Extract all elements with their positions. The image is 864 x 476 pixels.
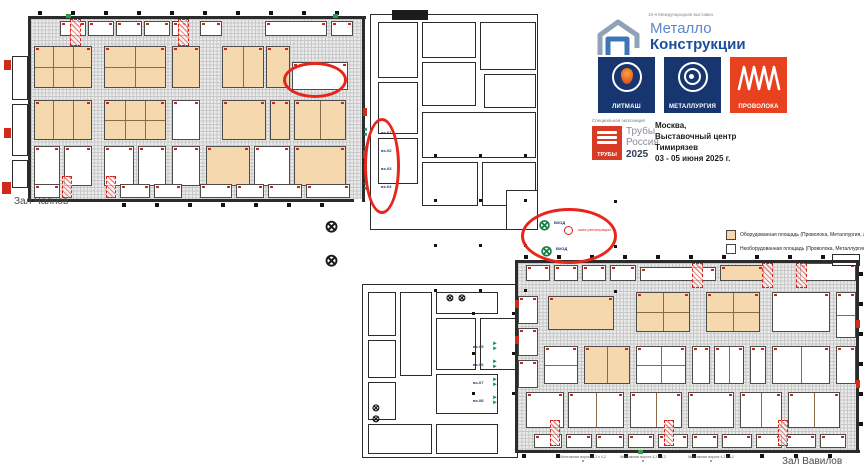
booth — [268, 184, 302, 198]
column-dot — [524, 154, 527, 157]
booth — [820, 434, 846, 448]
booth — [306, 184, 350, 198]
entrance-label: вх-07 — [473, 380, 489, 386]
booth — [836, 346, 856, 384]
booth — [688, 392, 734, 428]
floor-plan-page: ⊗⊗⊗⊗⊗⊗⊗⊗◄◄вх-01◄◄вх-02◄◄вх-03◄◄вх-04►►вх… — [0, 0, 864, 476]
booth — [518, 360, 538, 388]
booth-divider — [105, 120, 165, 121]
booth — [720, 265, 764, 281]
booth — [596, 434, 624, 448]
booth-divider — [243, 47, 244, 87]
booth — [518, 296, 538, 324]
tile-label: ПРОВОЛОКА — [730, 104, 787, 110]
gate-note: Монтажные ворота 4,2 х 4,2 м — [688, 455, 734, 469]
booth — [772, 292, 830, 332]
fire-lane-strip — [692, 263, 703, 288]
booth-divider — [656, 393, 657, 427]
entrance-arrow-icon: ►► — [492, 342, 504, 352]
booth-divider — [596, 393, 597, 427]
booth — [722, 434, 752, 448]
booth — [566, 434, 592, 448]
entrance-label: вх-05 — [473, 344, 489, 350]
service-room — [422, 112, 536, 158]
column-dot — [689, 255, 693, 259]
entrance-arrow-icon: ►► — [492, 360, 504, 370]
tile-label: МЕТАЛЛУРГИЯ — [664, 104, 721, 110]
column-dot — [614, 200, 617, 203]
booth — [750, 346, 766, 384]
column-dot — [859, 332, 863, 336]
turnstile-icon: ⊗ — [444, 294, 456, 306]
column-dot — [269, 11, 273, 15]
column-dot — [122, 203, 126, 207]
brand-word-2: Конструкции — [650, 36, 746, 53]
column-dot — [859, 392, 863, 396]
service-room — [400, 292, 432, 376]
column-dot — [512, 392, 515, 395]
booth — [144, 21, 170, 36]
column-dot — [859, 302, 863, 306]
venue-line: 03 - 05 июня 2025 г. — [655, 153, 736, 164]
legend: Оборудованная площадь (Проволока, Металл… — [726, 230, 864, 258]
fire-lane-strip — [70, 19, 81, 46]
booth — [518, 328, 538, 356]
truby-line2: Россия — [626, 137, 659, 148]
booth-divider — [607, 347, 608, 383]
booth — [34, 100, 92, 140]
legend-label: Оборудованная площадь (Проволока, Металл… — [740, 232, 864, 238]
booth — [526, 265, 550, 281]
booth — [582, 265, 606, 281]
brand-tile-проволока: ПРОВОЛОКА — [730, 57, 787, 113]
booth-divider — [801, 347, 802, 383]
booth-divider — [320, 101, 321, 139]
entrance-arrow-icon: ►► — [492, 378, 504, 388]
highlight-ellipse — [283, 62, 347, 98]
column-dot — [479, 154, 482, 157]
hall1-label: Зал Чаянов — [14, 196, 94, 210]
venue-line: Москва, — [655, 120, 736, 131]
wire-icon — [730, 57, 787, 97]
booth — [254, 146, 290, 186]
venue-line: Выставочный центр — [655, 131, 736, 142]
service-room — [422, 62, 476, 106]
exit-mark — [638, 450, 643, 454]
column-dot — [434, 244, 437, 247]
column-dot — [859, 422, 863, 426]
wall — [28, 16, 31, 202]
column-dot — [302, 11, 306, 15]
wall — [515, 450, 860, 453]
wall-red-mark — [856, 380, 860, 388]
booth — [206, 146, 250, 186]
wall — [515, 260, 518, 453]
fire-lane-strip — [550, 420, 560, 446]
column-dot — [254, 203, 258, 207]
ladle-icon — [598, 57, 655, 97]
fire-lane-strip — [762, 263, 773, 288]
booth-divider — [814, 393, 815, 427]
column-dot — [155, 203, 159, 207]
column-dot — [859, 272, 863, 276]
column-dot — [472, 312, 475, 315]
column-dot — [859, 362, 863, 366]
booth — [172, 100, 200, 140]
wall-red-mark — [4, 60, 11, 70]
column-dot — [760, 454, 764, 458]
column-dot — [434, 199, 437, 202]
service-room — [368, 424, 432, 454]
column-dot — [38, 11, 42, 15]
gate-note: Монтажные ворота 4,2 х 4,2 м — [560, 455, 606, 469]
turnstile-icon: ⊗ — [456, 294, 468, 306]
hall2-label: Зал Вавилов — [782, 456, 862, 470]
booth — [34, 146, 60, 186]
fire-lane-strip — [664, 420, 674, 446]
column-dot — [170, 11, 174, 15]
venue-line: Тимирязев — [655, 142, 736, 153]
column-dot — [472, 392, 475, 395]
booth — [294, 146, 346, 186]
coil-icon — [664, 57, 721, 97]
column-dot — [479, 289, 482, 292]
column-dot — [320, 203, 324, 207]
column-dot — [221, 203, 225, 207]
booth — [222, 100, 266, 140]
truby-logo: ТРУБЫ — [592, 126, 622, 160]
column-dot — [524, 199, 527, 202]
service-room — [436, 318, 476, 370]
column-dot — [434, 154, 437, 157]
column-dot — [472, 352, 475, 355]
booth-divider — [637, 312, 689, 313]
column-dot — [479, 199, 482, 202]
truby-year: 2025 — [626, 149, 648, 160]
booth — [692, 346, 710, 384]
fire-lane-strip — [62, 176, 72, 198]
booth — [154, 184, 182, 198]
service-room — [480, 22, 536, 70]
turnstile-icon: ⊗ — [322, 218, 341, 237]
service-room — [12, 104, 28, 156]
column-dot — [188, 203, 192, 207]
booth — [554, 265, 578, 281]
booth — [138, 146, 166, 186]
truby-line1: Трубы — [626, 126, 655, 137]
column-dot — [71, 11, 75, 15]
venue-address: Москва,Выставочный центрТимирязев03 - 05… — [655, 120, 736, 164]
column-dot — [614, 290, 617, 293]
service-room — [368, 340, 396, 378]
wall-red-mark — [4, 128, 11, 138]
column-dot — [512, 312, 515, 315]
booth-divider — [637, 365, 685, 366]
service-room — [484, 74, 536, 108]
booth-divider — [105, 67, 165, 68]
booth — [88, 21, 114, 36]
column-dot — [524, 255, 528, 259]
wall-red-mark — [2, 182, 11, 194]
pipe-bar-icon — [597, 136, 617, 139]
service-room — [12, 160, 28, 188]
legend-swatch — [726, 244, 736, 254]
entrance-label: вх-06 — [473, 362, 489, 368]
booth — [270, 100, 290, 140]
entrance-label: вх-08 — [473, 398, 489, 404]
fire-lane-strip — [178, 19, 189, 46]
fire-lane-strip — [796, 263, 807, 288]
wall-red-mark — [856, 320, 860, 328]
special-expo-note: Специальная экспозиция — [592, 118, 645, 123]
pipe-bar-icon — [597, 131, 617, 134]
column-dot — [522, 454, 526, 458]
column-dot — [104, 11, 108, 15]
service-room — [12, 56, 28, 100]
booth — [172, 46, 200, 88]
booth-divider — [35, 67, 91, 68]
booth-divider — [73, 101, 74, 139]
booth — [628, 434, 654, 448]
service-room — [368, 292, 396, 336]
legend-label: Необорудованная площадь (Проволока, Мета… — [740, 246, 864, 252]
brand-word-1: Металло — [650, 20, 712, 37]
pipe-bar-icon — [597, 141, 617, 144]
turnstile-icon: ⊗ — [322, 252, 341, 271]
tile-label: ЛИТМАШ — [598, 104, 655, 110]
metallo-house-icon — [594, 18, 644, 58]
booth-divider — [707, 312, 759, 313]
booth-divider — [729, 347, 730, 383]
truby-box-label: ТРУБЫ — [592, 152, 622, 158]
legend-swatch — [726, 230, 736, 240]
turnstile-icon: ⊗ — [370, 415, 382, 427]
column-dot — [434, 289, 437, 292]
service-room — [422, 162, 478, 206]
brand-tile-металлургия: МЕТАЛЛУРГИЯ — [664, 57, 721, 113]
column-dot — [287, 203, 291, 207]
column-dot — [137, 11, 141, 15]
service-block — [392, 10, 428, 20]
column-dot — [656, 255, 660, 259]
entrance-arrow-icon: ►► — [492, 396, 504, 406]
column-dot — [479, 244, 482, 247]
booth — [116, 21, 142, 36]
booth — [120, 184, 150, 198]
legend-item: Оборудованная площадь (Проволока, Металл… — [726, 230, 864, 240]
column-dot — [524, 289, 527, 292]
booth-divider — [53, 101, 54, 139]
fire-lane-strip — [106, 176, 116, 198]
exit-mark — [333, 14, 338, 18]
column-dot — [236, 11, 240, 15]
gate-note: Монтажные ворота 4,2 х 4,2 м — [620, 455, 666, 469]
column-dot — [623, 255, 627, 259]
wall-red-mark — [363, 108, 367, 116]
booth — [640, 267, 716, 281]
booth — [200, 184, 232, 198]
legend-item: Необорудованная площадь (Проволока, Мета… — [726, 244, 864, 254]
column-dot — [614, 245, 617, 248]
booth — [548, 296, 614, 330]
highlight-ellipse — [521, 208, 617, 264]
booth — [172, 146, 200, 186]
booth-divider — [761, 393, 762, 427]
booth — [610, 265, 636, 281]
booth — [200, 21, 222, 36]
service-room — [436, 424, 498, 454]
booth — [331, 21, 353, 36]
column-dot — [512, 352, 515, 355]
booth — [236, 184, 264, 198]
booth — [265, 21, 327, 36]
highlight-ellipse — [364, 118, 400, 214]
fire-lane-strip — [778, 420, 788, 446]
booth — [692, 434, 718, 448]
booth — [786, 434, 816, 448]
service-room — [422, 22, 476, 58]
booth-divider — [837, 315, 855, 316]
service-room — [378, 22, 418, 78]
wall-red-mark — [515, 300, 519, 308]
wall-red-mark — [515, 336, 519, 344]
column-dot — [203, 11, 207, 15]
brand-tile-литмаш: ЛИТМАШ — [598, 57, 655, 113]
edition-note: 10-я Международная выставка — [648, 12, 713, 17]
booth-divider — [545, 365, 577, 366]
exit-mark — [66, 14, 71, 18]
